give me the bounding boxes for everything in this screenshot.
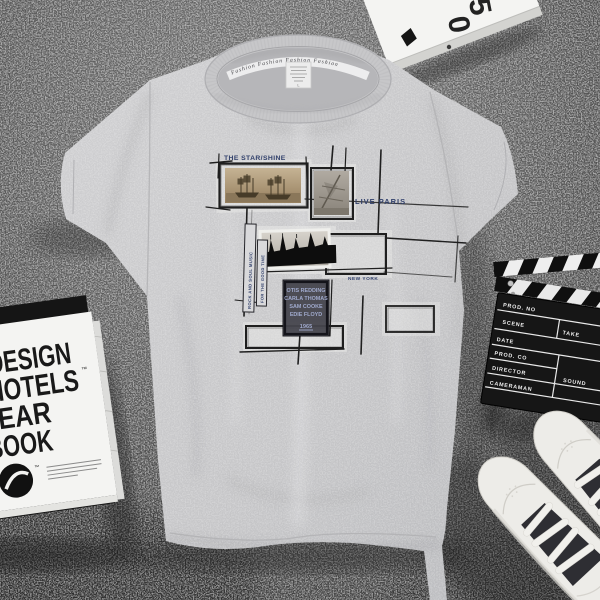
name-4: EDIE FLOYD: [290, 312, 322, 318]
print-right-label: LIVE PARIS: [355, 197, 406, 206]
collar: Fashion Fashion Fashion Fashion L: [205, 35, 391, 123]
vertical-label-strip-1: ROCK AND SOUL MUSIC: [243, 224, 256, 312]
book-trademark: ™: [81, 366, 88, 374]
ship-photo-sepia: [225, 168, 301, 203]
vertical-label-strip-2: FOR THE GOOD TIME: [256, 240, 267, 306]
vertical-label-2: FOR THE GOOD TIME: [259, 255, 265, 303]
scene: DESIGN HOTELS ™ YEAR BOOK ™ 0 5: [0, 0, 600, 600]
name-2: CARLA THOMAS: [284, 296, 328, 302]
name-3: SAM COOKE: [289, 304, 323, 310]
print-small-label: NEW YORK: [348, 276, 378, 282]
small-dot: [447, 45, 451, 49]
mast-photo: [314, 171, 349, 215]
name-1: OTIS REDDING: [287, 288, 326, 294]
care-label: L: [286, 62, 311, 88]
print-year: 1965: [300, 324, 312, 330]
book-trademark-2: ™: [34, 464, 40, 471]
ships-silhouette-photo: [258, 228, 336, 270]
product-photo: DESIGN HOTELS ™ YEAR BOOK ™ 0 5: [0, 0, 600, 600]
names-panel: OTIS REDDING CARLA THOMAS SAM COOKE EDIE…: [283, 280, 329, 336]
print-title: THE STAR/SHINE: [224, 155, 286, 162]
